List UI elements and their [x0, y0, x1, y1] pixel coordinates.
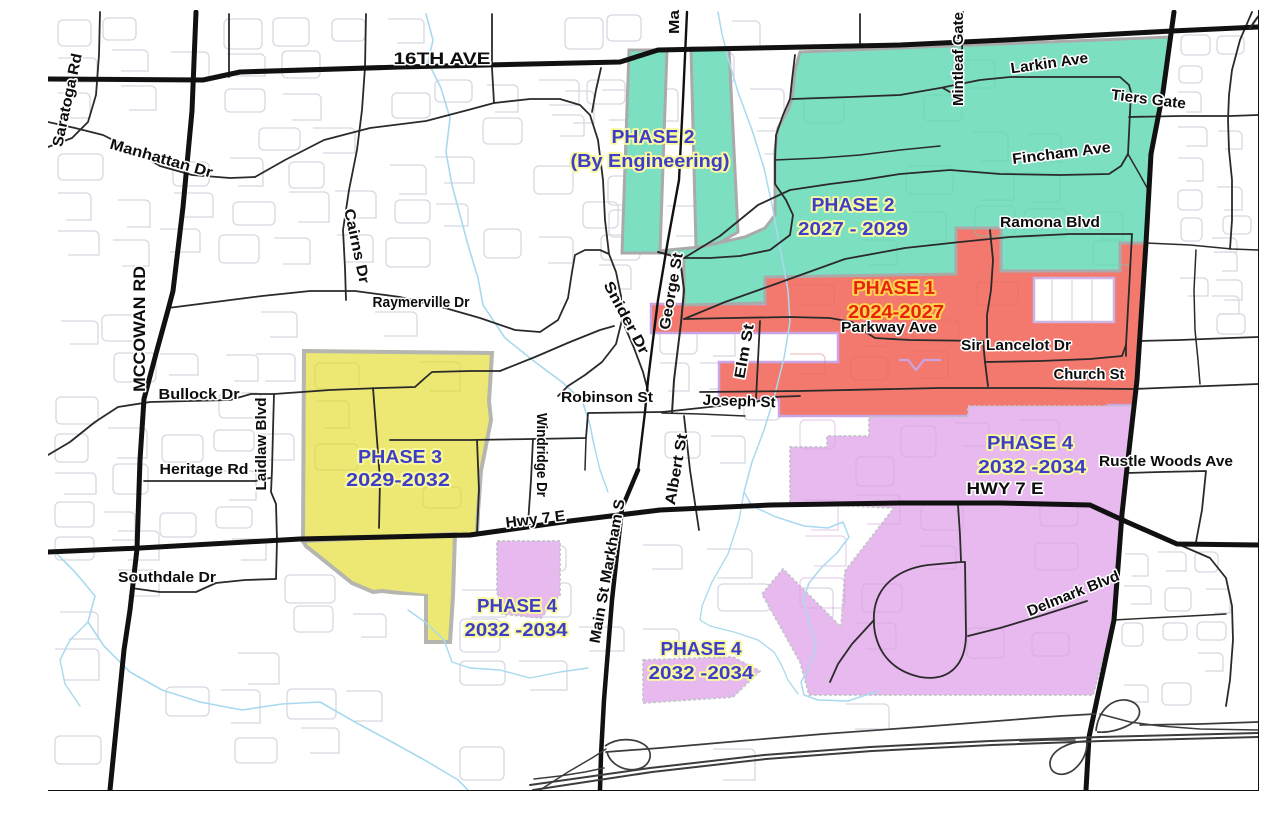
svg-text:2032 -2034: 2032 -2034 — [465, 620, 568, 640]
svg-text:2032 -2034: 2032 -2034 — [649, 663, 754, 683]
svg-text:Bullock Dr: Bullock Dr — [159, 386, 240, 403]
svg-text:Laidlaw Blvd: Laidlaw Blvd — [253, 398, 270, 491]
svg-text:Mintleaf Gate: Mintleaf Gate — [950, 12, 967, 106]
svg-text:PHASE 3: PHASE 3 — [358, 447, 442, 467]
svg-text:Heritage Rd: Heritage Rd — [160, 461, 249, 478]
svg-text:Sir Lancelot Dr: Sir Lancelot Dr — [961, 337, 1071, 354]
svg-text:2032 -2034: 2032 -2034 — [978, 457, 1086, 477]
svg-text:PHASE 2: PHASE 2 — [612, 127, 695, 147]
svg-text:Windridge Dr: Windridge Dr — [533, 413, 550, 497]
svg-text:PHASE 4: PHASE 4 — [477, 596, 557, 616]
svg-text:Joseph St: Joseph St — [702, 392, 776, 412]
svg-text:MCCOWAN RD: MCCOWAN RD — [130, 266, 149, 392]
svg-text:PHASE 4: PHASE 4 — [661, 639, 742, 659]
svg-text:2024-2027: 2024-2027 — [848, 302, 944, 322]
svg-text:Ramona Blvd: Ramona Blvd — [1000, 214, 1100, 231]
svg-text:Southdale Dr: Southdale Dr — [118, 569, 216, 586]
svg-text:Church St: Church St — [1054, 366, 1125, 383]
svg-text:Raymerville Dr: Raymerville Dr — [373, 294, 470, 311]
svg-text:PHASE 2: PHASE 2 — [812, 195, 895, 215]
svg-text:PHASE 4: PHASE 4 — [987, 433, 1073, 453]
svg-text:(By Engineering): (By Engineering) — [571, 151, 730, 171]
svg-text:HWY 7 E: HWY 7 E — [967, 479, 1044, 498]
svg-text:Ma: Ma — [666, 9, 683, 34]
svg-text:16TH AVE: 16TH AVE — [394, 49, 491, 68]
svg-text:Robinson St: Robinson St — [561, 389, 653, 406]
svg-text:PHASE 1: PHASE 1 — [853, 278, 935, 298]
svg-text:2029-2032: 2029-2032 — [346, 470, 450, 490]
svg-text:2027 - 2029: 2027 - 2029 — [798, 219, 908, 239]
svg-text:Rustle Woods Ave: Rustle Woods Ave — [1099, 453, 1233, 470]
